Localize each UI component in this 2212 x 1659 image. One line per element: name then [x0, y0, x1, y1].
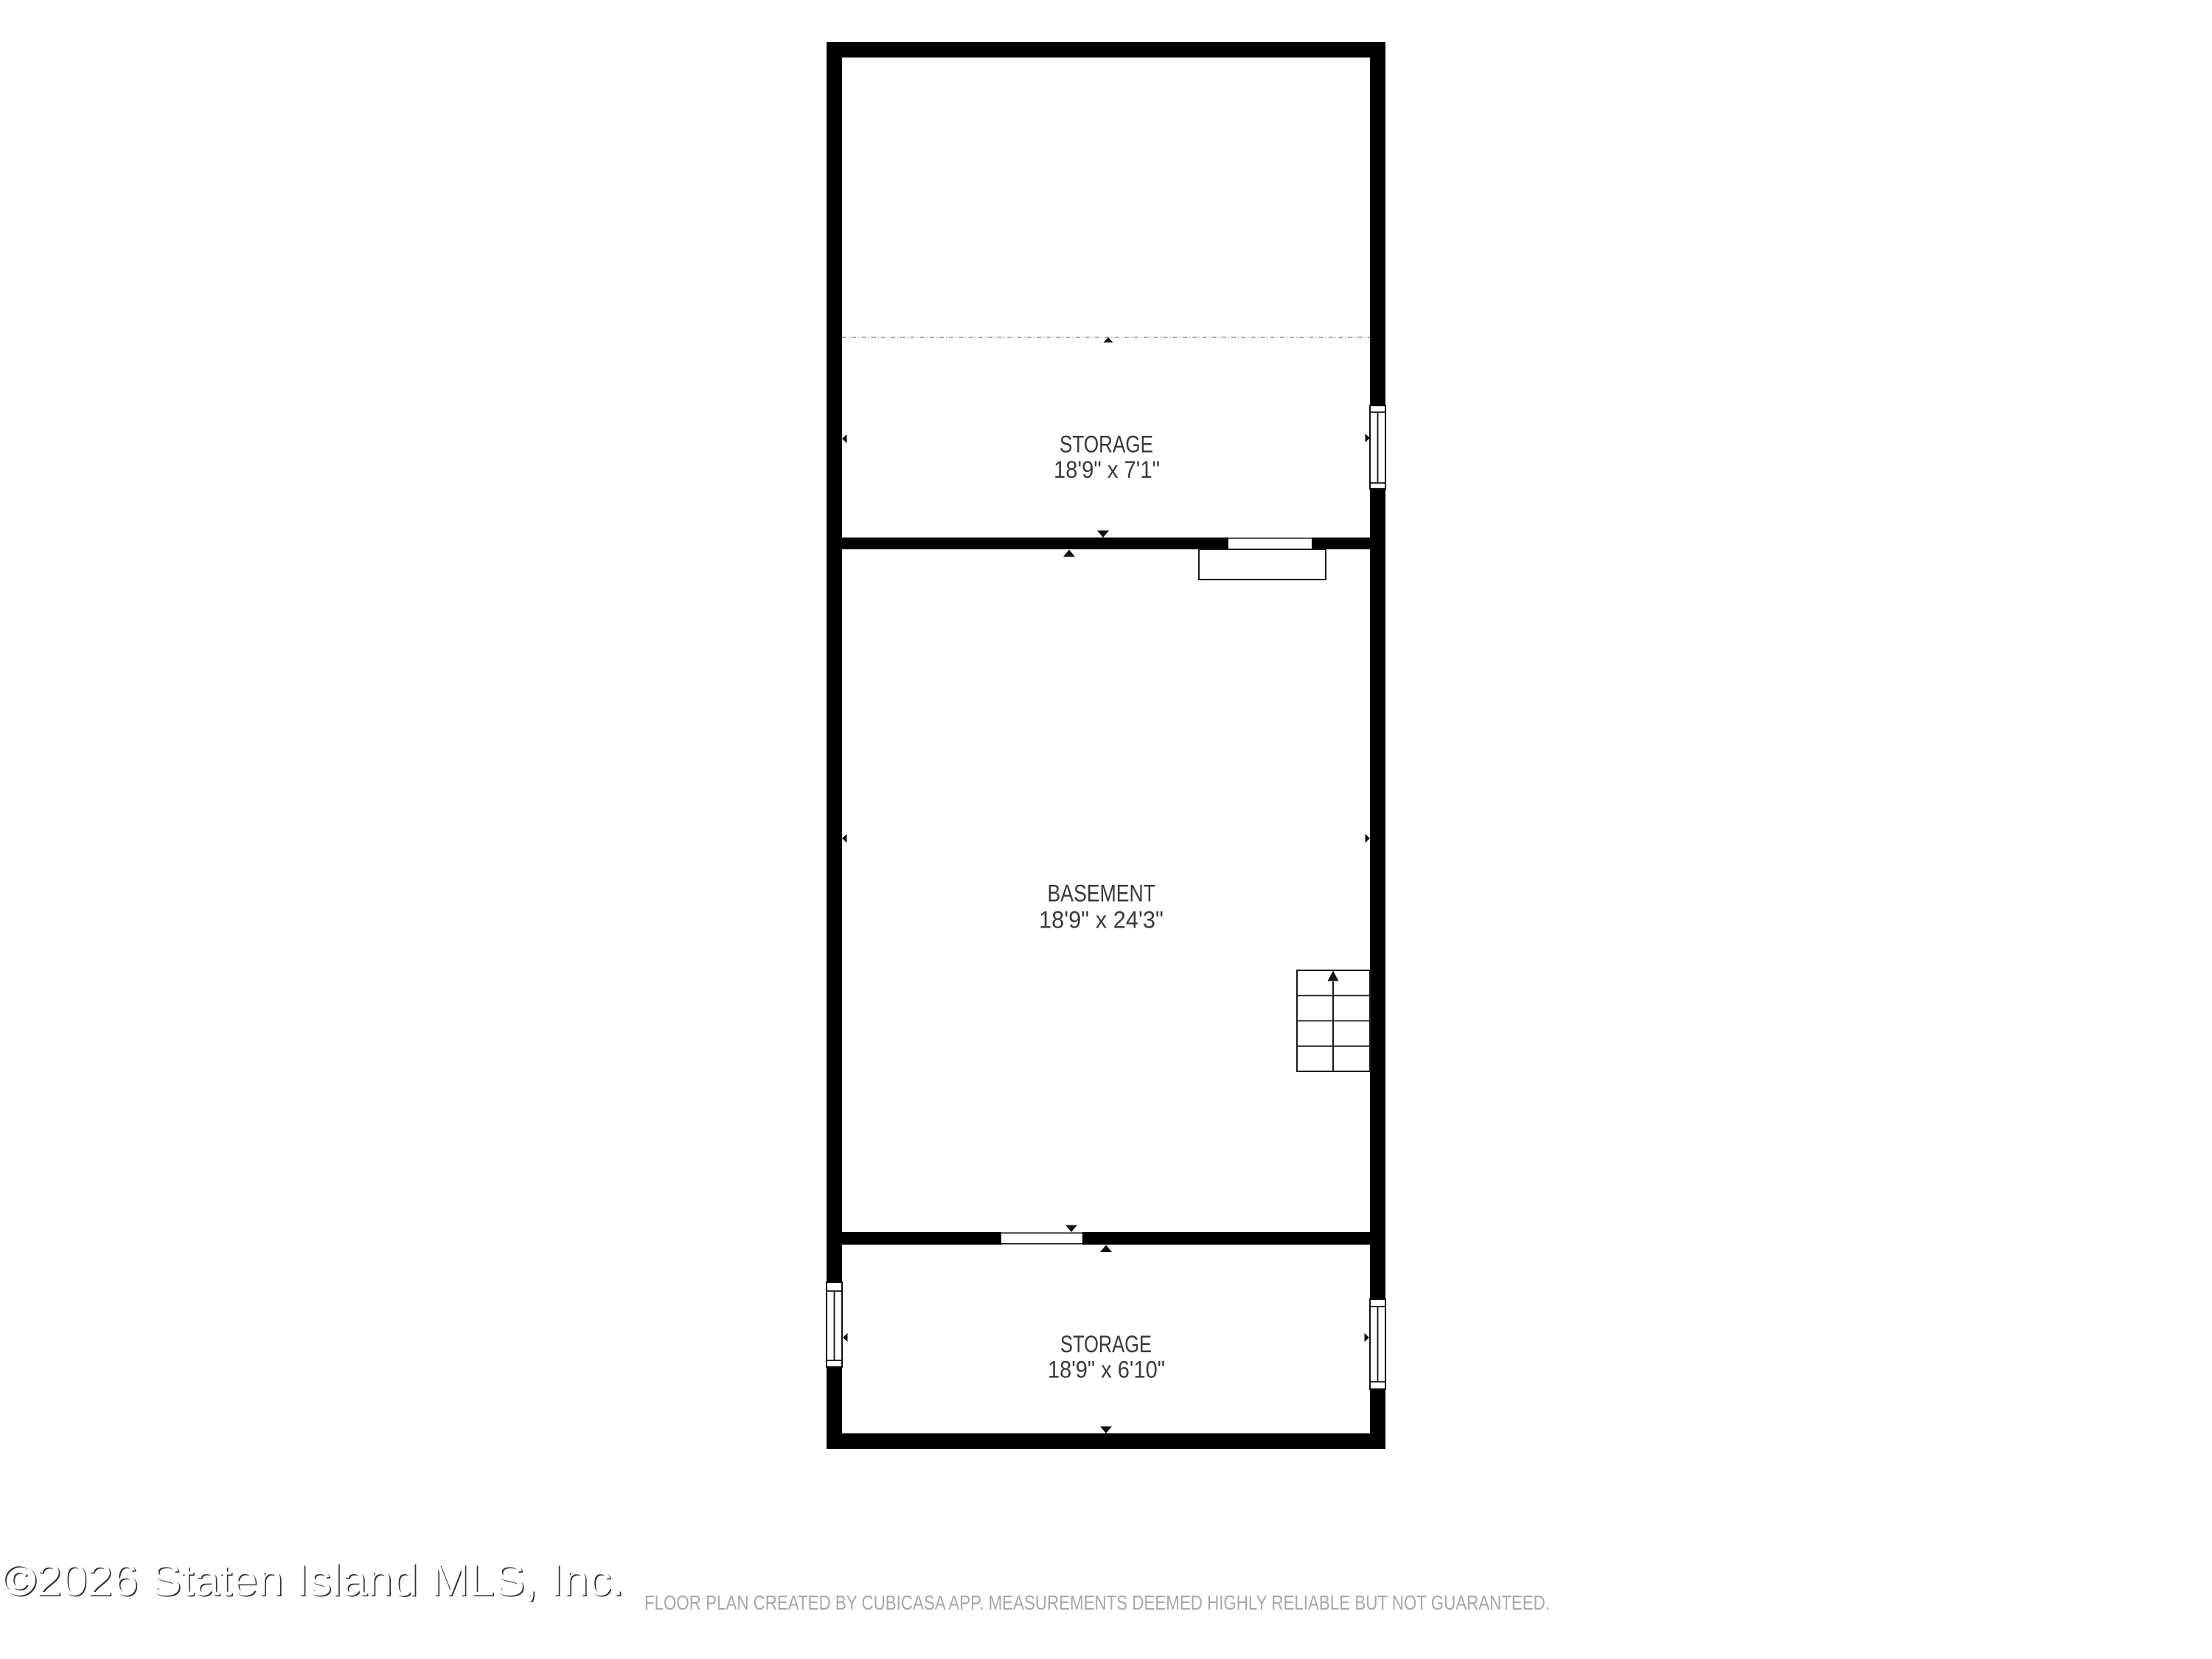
svg-text:18'9" x 7'1": 18'9" x 7'1" — [1054, 456, 1160, 483]
svg-text:BASEMENT: BASEMENT — [1048, 880, 1156, 907]
svg-text:©2026 Staten Island MLS, Inc.: ©2026 Staten Island MLS, Inc. — [2, 1555, 624, 1604]
svg-text:18'9" x 6'10": 18'9" x 6'10" — [1048, 1357, 1165, 1383]
svg-text:STORAGE: STORAGE — [1060, 431, 1153, 457]
svg-text:18'9" x 24'3": 18'9" x 24'3" — [1039, 906, 1164, 933]
svg-text:STORAGE: STORAGE — [1060, 1331, 1152, 1357]
svg-text:FLOOR PLAN CREATED BY CUBICASA: FLOOR PLAN CREATED BY CUBICASA APP. MEAS… — [644, 1591, 1550, 1614]
